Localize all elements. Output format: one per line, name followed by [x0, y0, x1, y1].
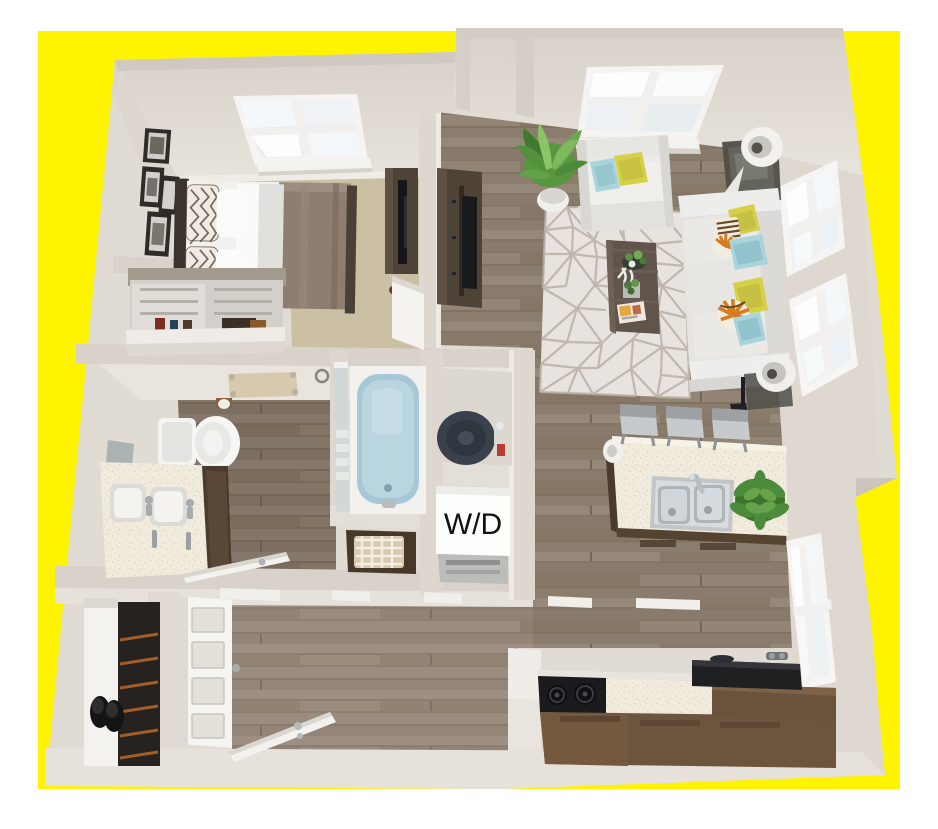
svg-text:W/D: W/D — [444, 508, 502, 541]
